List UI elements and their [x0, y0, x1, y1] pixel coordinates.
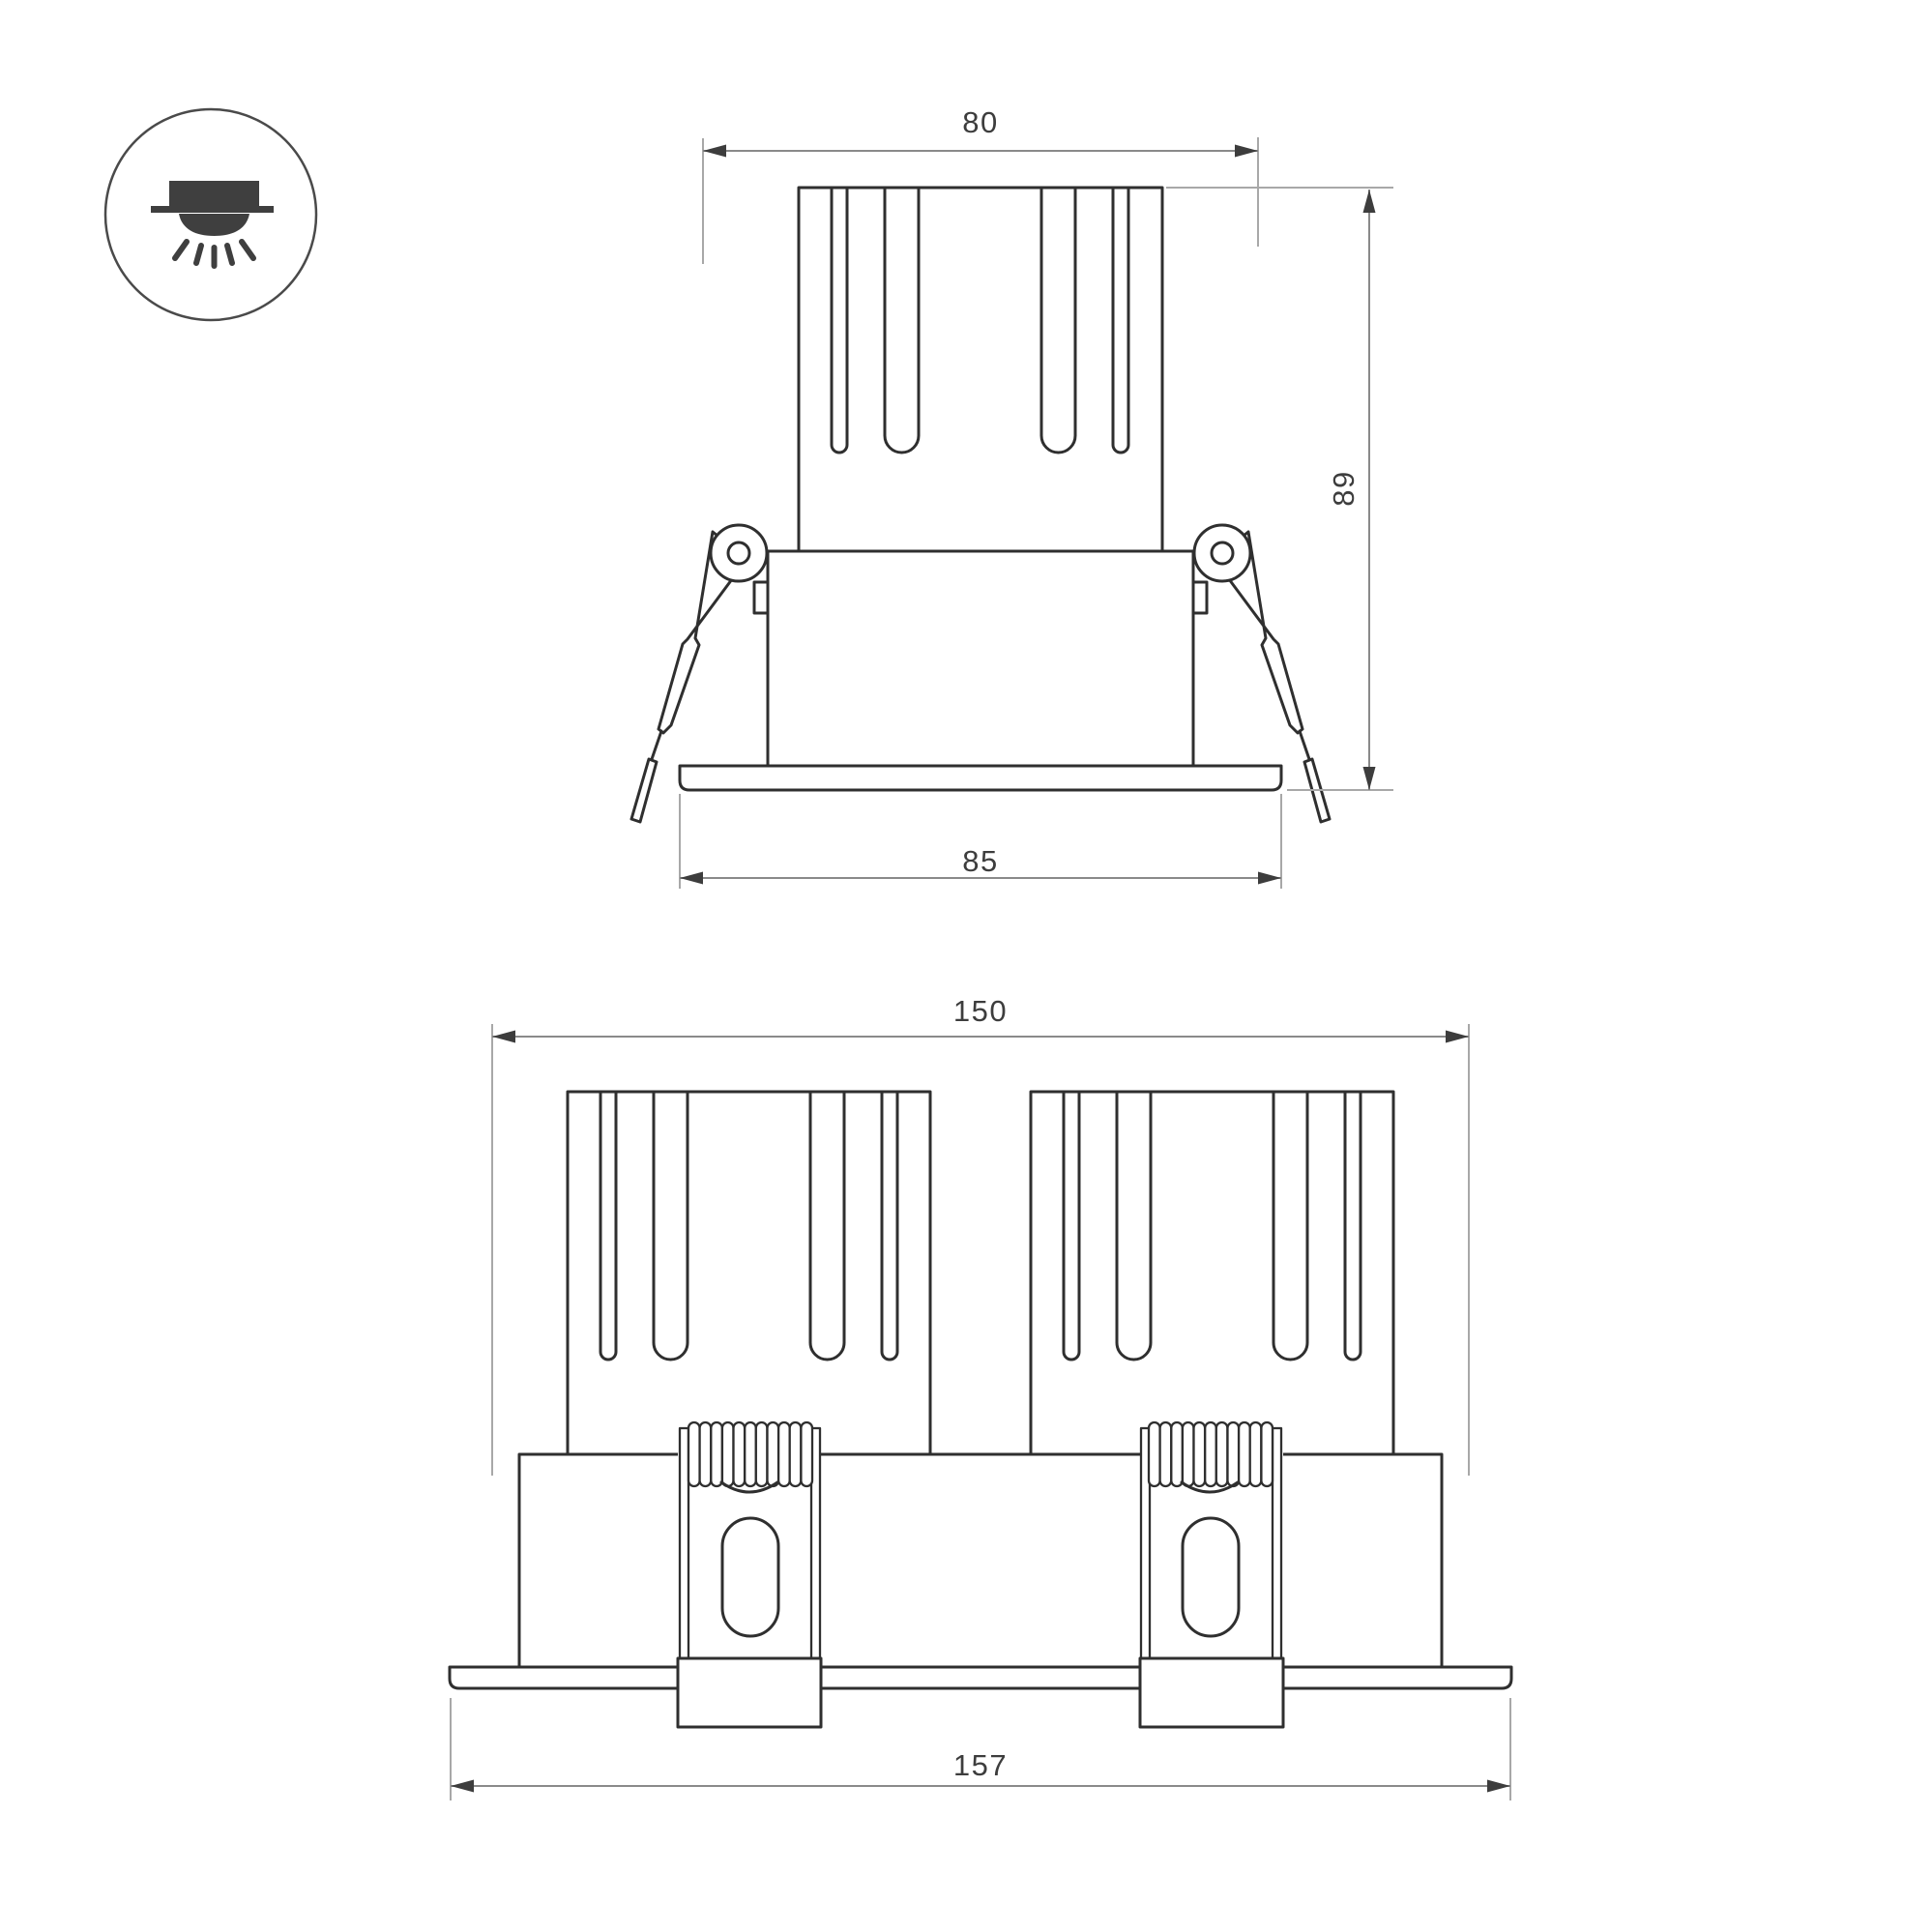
housing-clip-notch-left	[754, 582, 768, 613]
adjustment-slot	[722, 1518, 778, 1636]
coil-spring	[688, 1422, 812, 1486]
double-module-front-view: 150 157	[450, 994, 1511, 1800]
adjustment-slot	[1183, 1518, 1239, 1636]
dimension-flange-width-85: 85	[680, 794, 1281, 889]
clip-pivot-hole	[728, 542, 749, 564]
icon-lamp-body	[169, 181, 259, 207]
tower-plate	[680, 1428, 688, 1658]
heatsink-body-left	[568, 1092, 930, 1454]
dimension-flange-width-157: 157	[451, 1698, 1510, 1800]
dim-label-80: 80	[962, 105, 998, 139]
clip-tip	[631, 759, 657, 822]
icon-light-dome	[179, 214, 249, 236]
dim-label-157: 157	[953, 1748, 1008, 1782]
housing-clip-notch-right	[1193, 582, 1207, 613]
lamp-housing-double	[519, 1454, 1442, 1667]
recessed-downlight-icon	[105, 109, 316, 320]
drawing-sheet: 80 89 85	[0, 0, 1932, 1932]
clip-pivot-hole	[1212, 542, 1233, 564]
tower-plate	[1273, 1428, 1281, 1658]
heatsink-body	[799, 188, 1162, 551]
icon-light-rays	[175, 242, 253, 266]
tower-foot	[1140, 1658, 1283, 1727]
trim-flange	[680, 766, 1281, 790]
technical-drawing-canvas: 80 89 85	[0, 0, 1932, 1932]
lamp-housing	[768, 551, 1193, 766]
dim-label-150: 150	[953, 994, 1008, 1028]
heatsink-body-right	[1031, 1092, 1393, 1454]
single-module-front-view: 80 89 85	[631, 105, 1393, 889]
spring-clip-tower-left	[678, 1417, 821, 1728]
trim-flange-double	[450, 1667, 1511, 1688]
spring-clip-tower-right	[1140, 1417, 1283, 1728]
dim-label-89: 89	[1327, 470, 1361, 506]
tower-foot	[678, 1658, 821, 1727]
coil-spring	[1149, 1422, 1273, 1486]
dim-label-85: 85	[962, 844, 998, 878]
icon-ceiling-line	[151, 206, 274, 213]
